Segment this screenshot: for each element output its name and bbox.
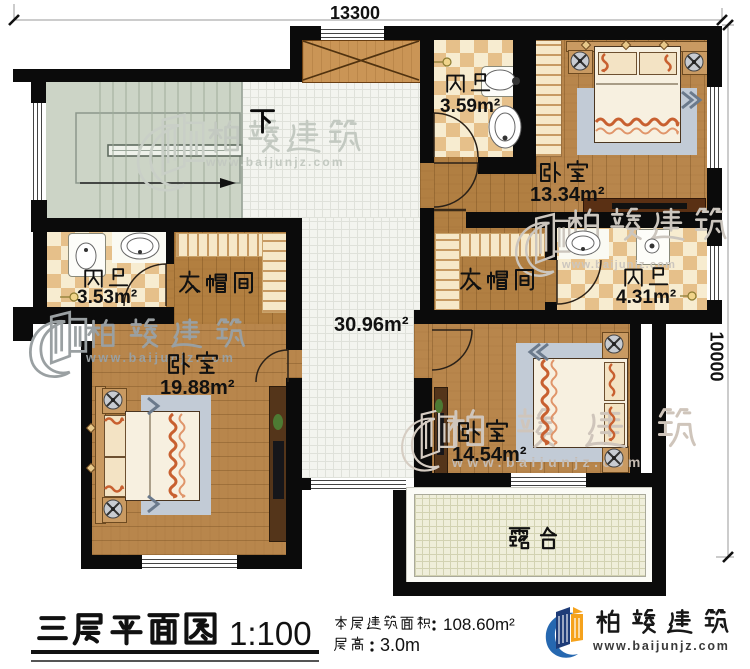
svg-text:www.baijunjz.com: www.baijunjz.com xyxy=(561,259,676,271)
svg-text:www.baijunjz.com: www.baijunjz.com xyxy=(85,351,235,365)
svg-text:www.baijunjz.com: www.baijunjz.com xyxy=(205,155,345,169)
